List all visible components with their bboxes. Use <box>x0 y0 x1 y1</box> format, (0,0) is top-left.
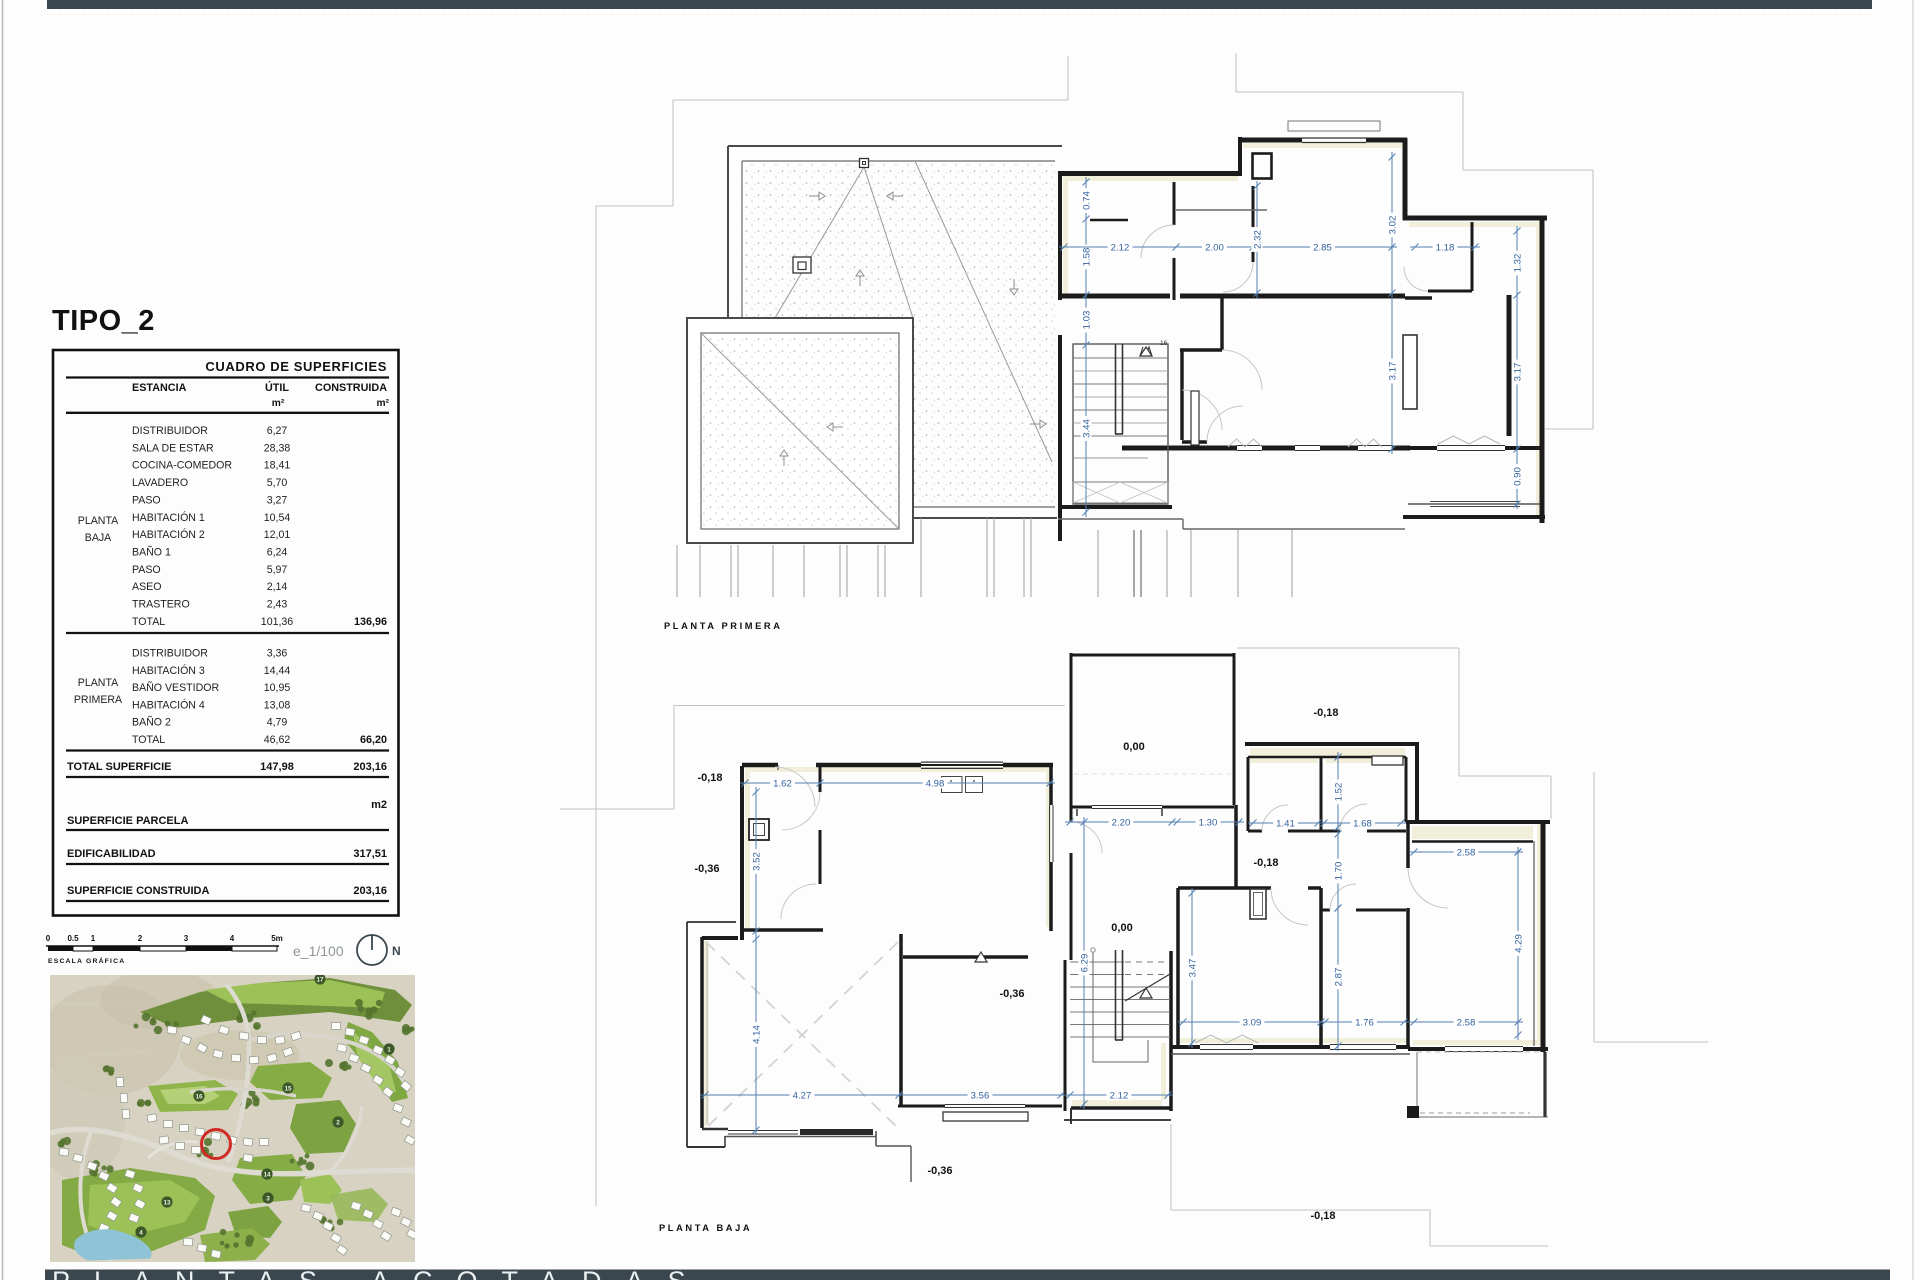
svg-text:1.32: 1.32 <box>1513 254 1524 273</box>
svg-text:-0,36: -0,36 <box>694 863 719 875</box>
svg-text:EDIFICABILIDAD: EDIFICABILIDAD <box>67 848 156 860</box>
svg-text:6.29: 6.29 <box>1080 954 1091 973</box>
svg-text:-0,18: -0,18 <box>1310 1210 1335 1222</box>
svg-text:4.14: 4.14 <box>752 1025 763 1044</box>
svg-text:LAVADERO: LAVADERO <box>132 477 188 489</box>
svg-text:2.12: 2.12 <box>1111 243 1130 254</box>
svg-text:4: 4 <box>230 934 235 943</box>
svg-text:CUADRO DE SUPERFICIES: CUADRO DE SUPERFICIES <box>205 359 387 374</box>
svg-text:0.74: 0.74 <box>1082 191 1093 210</box>
svg-text:ESCALA GRÁFICA: ESCALA GRÁFICA <box>48 956 125 965</box>
svg-text:DISTRIBUIDOR: DISTRIBUIDOR <box>132 648 208 660</box>
svg-text:17: 17 <box>316 976 324 983</box>
svg-text:5m: 5m <box>271 934 283 943</box>
svg-text:HABITACIÓN 3: HABITACIÓN 3 <box>132 664 205 677</box>
svg-text:-0,18: -0,18 <box>1253 857 1278 869</box>
svg-text:-0,18: -0,18 <box>1313 707 1338 719</box>
svg-text:0: 0 <box>46 934 51 943</box>
svg-text:1: 1 <box>91 934 96 943</box>
svg-text:1.41: 1.41 <box>1276 819 1295 830</box>
svg-text:TOTAL SUPERFICIE: TOTAL SUPERFICIE <box>67 761 172 773</box>
svg-text:2.12: 2.12 <box>1110 1091 1129 1102</box>
svg-text:203,16: 203,16 <box>353 761 387 773</box>
svg-text:m²: m² <box>272 398 285 409</box>
svg-text:PLANTA BAJA: PLANTA BAJA <box>659 1223 752 1233</box>
svg-text:4.29: 4.29 <box>1514 934 1525 953</box>
svg-text:SUPERFICIE CONSTRUIDA: SUPERFICIE CONSTRUIDA <box>67 885 209 897</box>
svg-text:2.20: 2.20 <box>1112 818 1131 829</box>
svg-text:3,36: 3,36 <box>267 648 288 660</box>
svg-text:3.09: 3.09 <box>1243 1018 1262 1029</box>
svg-text:0,00: 0,00 <box>1123 741 1144 753</box>
svg-text:4: 4 <box>139 1229 143 1236</box>
svg-text:28,38: 28,38 <box>264 442 291 454</box>
svg-text:2.87: 2.87 <box>1334 968 1345 987</box>
svg-text:317,51: 317,51 <box>353 848 387 860</box>
svg-text:10,95: 10,95 <box>264 682 291 694</box>
svg-text:3.02: 3.02 <box>1388 216 1399 235</box>
svg-text:HABITACIÓN 1: HABITACIÓN 1 <box>132 511 205 524</box>
svg-text:0.90: 0.90 <box>1513 467 1524 486</box>
svg-text:13,08: 13,08 <box>264 699 291 711</box>
svg-text:2.85: 2.85 <box>1313 243 1332 254</box>
svg-text:1.70: 1.70 <box>1334 862 1345 881</box>
svg-text:DISTRIBUIDOR: DISTRIBUIDOR <box>132 425 208 437</box>
svg-text:1.52: 1.52 <box>1334 783 1345 802</box>
svg-text:SALA DE ESTAR: SALA DE ESTAR <box>132 442 214 454</box>
svg-text:10,54: 10,54 <box>264 512 291 524</box>
svg-text:1.03: 1.03 <box>1082 311 1093 330</box>
svg-text:3.17: 3.17 <box>1513 363 1524 382</box>
svg-text:BAÑO 1: BAÑO 1 <box>132 545 171 558</box>
svg-text:TOTAL: TOTAL <box>132 734 165 746</box>
svg-text:6,27: 6,27 <box>267 425 288 437</box>
svg-text:12,01: 12,01 <box>264 529 291 541</box>
svg-text:PRIMERA: PRIMERA <box>74 694 123 706</box>
svg-text:CONSTRUIDA: CONSTRUIDA <box>315 382 387 394</box>
svg-text:14: 14 <box>263 1171 271 1178</box>
svg-text:2,14: 2,14 <box>267 581 288 593</box>
svg-text:3: 3 <box>266 1195 270 1202</box>
svg-text:4.27: 4.27 <box>793 1091 812 1102</box>
svg-text:4,79: 4,79 <box>267 717 288 729</box>
svg-text:e_1/100: e_1/100 <box>293 943 344 959</box>
svg-text:2.58: 2.58 <box>1457 1018 1476 1029</box>
svg-text:66,20: 66,20 <box>360 734 387 746</box>
svg-text:HABITACIÓN 4: HABITACIÓN 4 <box>132 698 205 711</box>
svg-text:3: 3 <box>184 934 189 943</box>
svg-text:BAÑO 2: BAÑO 2 <box>132 716 171 729</box>
svg-text:2: 2 <box>336 1119 340 1126</box>
svg-text:-0,36: -0,36 <box>999 988 1024 1000</box>
svg-text:N: N <box>392 944 401 958</box>
svg-text:1.30: 1.30 <box>1199 818 1218 829</box>
svg-text:1.62: 1.62 <box>773 779 792 790</box>
svg-text:TIPO_2: TIPO_2 <box>52 305 155 337</box>
svg-text:18,41: 18,41 <box>264 460 291 472</box>
svg-text:-0,18: -0,18 <box>697 772 722 784</box>
svg-text:2,43: 2,43 <box>267 599 288 611</box>
svg-text:SUPERFICIE PARCELA: SUPERFICIE PARCELA <box>67 815 188 827</box>
svg-text:1: 1 <box>387 1046 391 1053</box>
svg-text:BAJA: BAJA <box>85 532 112 544</box>
svg-text:6,24: 6,24 <box>267 546 288 558</box>
svg-text:TRASTERO: TRASTERO <box>132 599 190 611</box>
svg-text:16: 16 <box>1160 340 1168 347</box>
svg-text:5,70: 5,70 <box>267 477 288 489</box>
svg-text:m²: m² <box>377 398 390 409</box>
svg-text:PLANTA: PLANTA <box>78 677 119 689</box>
svg-text:0.5: 0.5 <box>67 934 79 943</box>
svg-text:46,62: 46,62 <box>264 734 291 746</box>
svg-text:136,96: 136,96 <box>354 616 387 628</box>
svg-text:-0,36: -0,36 <box>927 1165 952 1177</box>
svg-text:ÚTIL: ÚTIL <box>265 381 289 394</box>
svg-text:3.52: 3.52 <box>752 852 763 871</box>
svg-text:2: 2 <box>138 934 143 943</box>
svg-text:14,44: 14,44 <box>264 665 291 677</box>
svg-text:16: 16 <box>195 1093 203 1100</box>
svg-text:203,16: 203,16 <box>353 885 387 897</box>
svg-text:PLANTA PRIMERA: PLANTA PRIMERA <box>664 621 783 631</box>
svg-text:2.00: 2.00 <box>1205 243 1224 254</box>
svg-text:PLANTA: PLANTA <box>78 515 119 527</box>
svg-text:ESTANCIA: ESTANCIA <box>132 382 187 394</box>
svg-text:1.68: 1.68 <box>1353 819 1372 830</box>
svg-text:TOTAL: TOTAL <box>132 616 165 628</box>
svg-text:3.47: 3.47 <box>1188 959 1199 978</box>
svg-text:3.17: 3.17 <box>1388 362 1399 381</box>
svg-text:PASO: PASO <box>132 564 161 576</box>
svg-text:5,97: 5,97 <box>267 564 288 576</box>
svg-text:147,98: 147,98 <box>260 761 294 773</box>
svg-text:1.18: 1.18 <box>1436 243 1455 254</box>
svg-text:3.44: 3.44 <box>1082 419 1093 438</box>
svg-text:3.56: 3.56 <box>971 1091 990 1102</box>
svg-text:HABITACIÓN 2: HABITACIÓN 2 <box>132 528 205 541</box>
svg-text:m2: m2 <box>371 799 387 811</box>
svg-text:2.32: 2.32 <box>1253 230 1264 249</box>
svg-text:101,36: 101,36 <box>261 616 294 628</box>
svg-text:PASO: PASO <box>132 494 161 506</box>
svg-text:BAÑO VESTIDOR: BAÑO VESTIDOR <box>132 681 219 694</box>
svg-text:ASEO: ASEO <box>132 581 161 593</box>
svg-text:4.98: 4.98 <box>926 779 945 790</box>
svg-text:3,27: 3,27 <box>267 494 288 506</box>
svg-text:13: 13 <box>163 1199 171 1206</box>
svg-text:1.58: 1.58 <box>1082 248 1093 267</box>
svg-text:15: 15 <box>284 1085 292 1092</box>
svg-text:2.58: 2.58 <box>1457 848 1476 859</box>
svg-text:0,00: 0,00 <box>1111 922 1132 934</box>
svg-text:COCINA-COMEDOR: COCINA-COMEDOR <box>132 460 232 472</box>
svg-text:1.76: 1.76 <box>1355 1018 1374 1029</box>
